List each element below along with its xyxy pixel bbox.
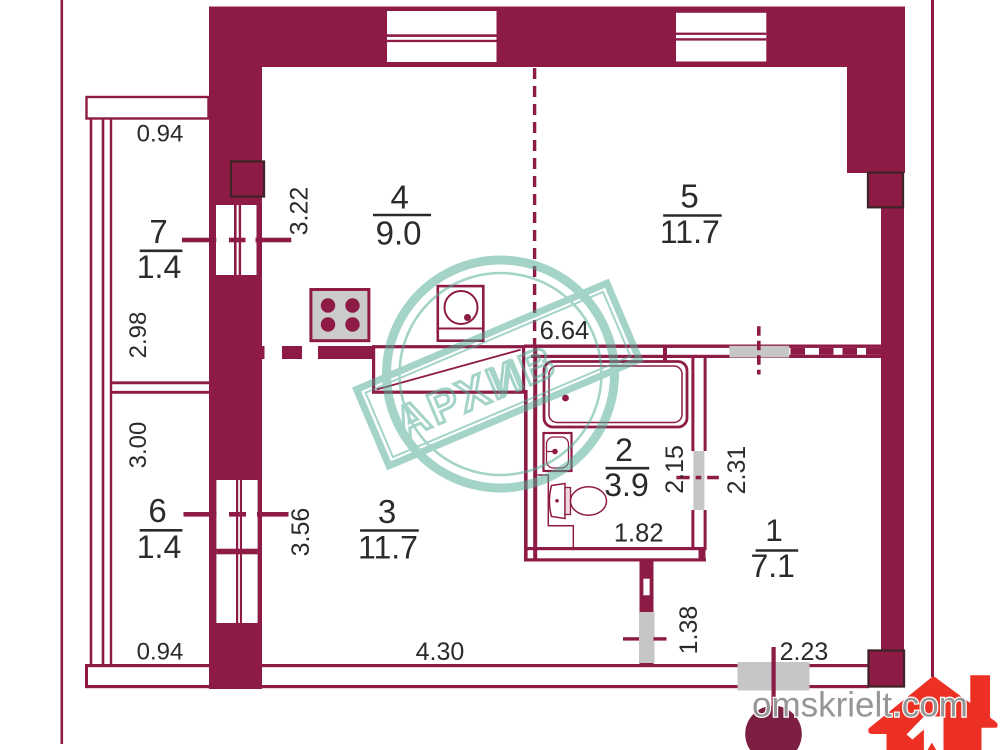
svg-text:7.1: 7.1 [750,548,794,584]
svg-text:1.38: 1.38 [675,606,703,655]
svg-text:2: 2 [615,432,633,468]
svg-text:11.7: 11.7 [660,214,720,250]
svg-text:3.22: 3.22 [286,187,314,236]
svg-text:9.0: 9.0 [376,214,422,251]
svg-text:3.56: 3.56 [287,508,315,557]
svg-text:7: 7 [149,213,167,250]
svg-text:6: 6 [148,492,166,529]
svg-text:2.23: 2.23 [780,638,829,666]
svg-text:3.9: 3.9 [604,467,648,503]
svg-text:1.4: 1.4 [137,249,181,285]
svg-text:0.94: 0.94 [137,120,184,147]
svg-text:4: 4 [391,178,409,215]
svg-text:11.7: 11.7 [358,530,418,566]
svg-text:1: 1 [765,512,783,548]
svg-text:2.15: 2.15 [661,445,689,494]
svg-text:0.94: 0.94 [137,639,184,666]
svg-text:5: 5 [680,178,698,215]
svg-text:2.98: 2.98 [125,312,152,359]
svg-text:omskrielt.com: omskrielt.com [752,686,968,725]
svg-text:1.82: 1.82 [614,520,664,548]
svg-text:1.4: 1.4 [137,529,181,565]
svg-text:3: 3 [378,493,396,530]
svg-text:4.30: 4.30 [416,638,465,666]
svg-text:3.00: 3.00 [125,422,152,469]
svg-text:2.31: 2.31 [723,446,751,495]
